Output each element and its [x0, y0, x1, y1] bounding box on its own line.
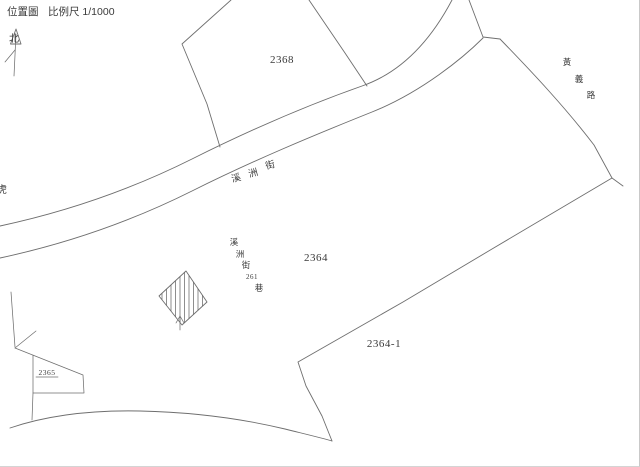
parcel-2368-right-boundary: [309, 0, 367, 86]
left-boundary: [11, 292, 15, 347]
parcel-2364-1-label: 2364-1: [367, 338, 401, 350]
wedge-line: [15, 331, 36, 348]
huangyi-road-edge: [500, 39, 623, 186]
site-arrow-icon: [176, 316, 184, 330]
map-title: 位置圖: [7, 5, 39, 18]
north-label: 北: [9, 33, 19, 45]
street-xizhou-char-1: 溪: [230, 171, 243, 185]
map-canvas: 位置圖 比例尺 1/1000 北 2368 2364 2364-1 2365 溪…: [0, 0, 640, 467]
street-huangyi-char-1: 黃: [563, 57, 572, 67]
road-corner-jog: [483, 37, 500, 39]
road-east-edge-top: [469, 0, 483, 37]
bottom-boundary: [10, 411, 332, 441]
road-lower-edge: [0, 38, 483, 258]
parcel-2364-1-boundary: [298, 178, 612, 441]
location-map: 位置圖 比例尺 1/1000 北 2368 2364 2364-1 2365 溪…: [0, 0, 640, 467]
parcel-2365-stub: [32, 393, 33, 420]
road-upper-edge: [0, 0, 452, 226]
parcel-2365-label: 2365: [39, 368, 56, 377]
street-huangyi-char-2: 義: [575, 74, 584, 84]
scale-label: 比例尺 1/1000: [48, 5, 115, 18]
street-huangyi-char-3: 路: [587, 90, 596, 100]
lane-261-part-4: 261: [246, 273, 258, 281]
street-xizhou-char-3: 街: [264, 158, 277, 172]
street-xizhou-char-2: 洲: [247, 167, 259, 180]
left-edge-street-char: 虎: [0, 184, 7, 196]
lane-261-part-1: 溪: [230, 237, 239, 247]
parcel-2368-left-boundary: [182, 0, 231, 147]
lane-261-part-5: 巷: [255, 283, 264, 293]
lane-261-part-3: 街: [242, 260, 251, 270]
parcel-2368-label: 2368: [270, 54, 294, 66]
parcel-2364-label: 2364: [304, 252, 328, 264]
lane-261-part-2: 洲: [236, 249, 245, 259]
